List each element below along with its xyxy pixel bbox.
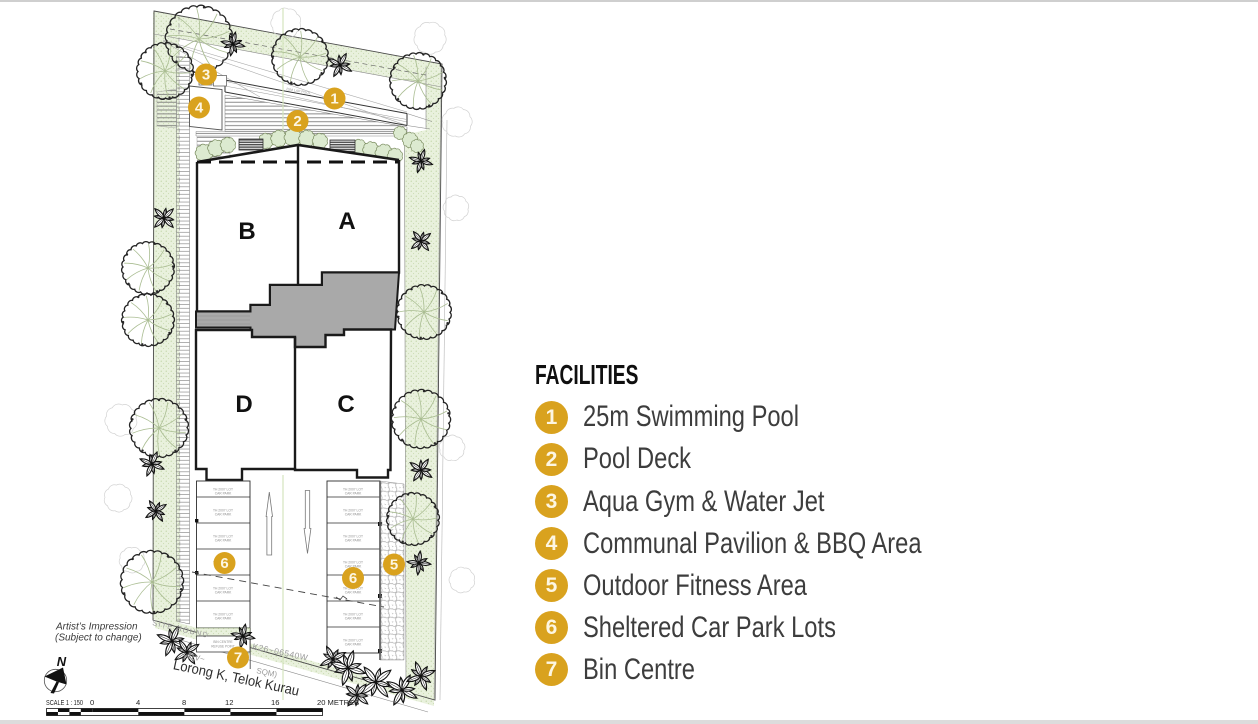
svg-text:CAR PARK: CAR PARK bbox=[215, 539, 232, 543]
svg-text:REFUSE POINT: REFUSE POINT bbox=[211, 645, 235, 649]
svg-text:4: 4 bbox=[136, 698, 140, 707]
svg-text:Artist’s Impression: Artist’s Impression bbox=[55, 622, 138, 633]
svg-text:3: 3 bbox=[202, 67, 210, 84]
svg-text:CAR PARK: CAR PARK bbox=[215, 513, 232, 517]
svg-text:2: 2 bbox=[293, 113, 301, 130]
svg-text:1: 1 bbox=[330, 91, 338, 108]
svg-text:4: 4 bbox=[195, 100, 204, 117]
svg-text:A: A bbox=[338, 208, 355, 235]
svg-text:CAR PARK: CAR PARK bbox=[345, 539, 362, 543]
svg-text:CAR PARK: CAR PARK bbox=[215, 617, 232, 621]
svg-text:6: 6 bbox=[349, 570, 357, 587]
svg-text:CAR PARK: CAR PARK bbox=[345, 643, 362, 647]
svg-text:CAR PARK: CAR PARK bbox=[345, 591, 362, 595]
svg-text:B: B bbox=[238, 218, 255, 245]
svg-text:CAR PARK: CAR PARK bbox=[345, 492, 362, 496]
svg-text:D: D bbox=[235, 391, 252, 418]
svg-text:CAR PARK: CAR PARK bbox=[215, 591, 232, 595]
svg-text:7: 7 bbox=[234, 650, 242, 667]
svg-text:6: 6 bbox=[220, 555, 228, 572]
svg-text:12: 12 bbox=[225, 698, 233, 707]
svg-text:(Subject to change): (Subject to change) bbox=[55, 633, 142, 644]
svg-text:SCALE 1 : 150: SCALE 1 : 150 bbox=[46, 698, 83, 707]
svg-text:C: C bbox=[337, 391, 354, 418]
svg-text:20 METRES: 20 METRES bbox=[317, 698, 359, 707]
svg-text:0: 0 bbox=[90, 698, 94, 707]
svg-text:N: N bbox=[57, 654, 67, 669]
svg-text:5: 5 bbox=[390, 557, 398, 574]
svg-text:16: 16 bbox=[271, 698, 279, 707]
svg-text:8: 8 bbox=[182, 698, 186, 707]
svg-text:CAR PARK: CAR PARK bbox=[215, 492, 232, 496]
svg-text:BIN CENTRE: BIN CENTRE bbox=[213, 640, 232, 644]
svg-text:25M LAP POOL: 25M LAP POOL bbox=[286, 87, 311, 95]
svg-text:CAR PARK: CAR PARK bbox=[345, 513, 362, 517]
svg-text:CAR PARK: CAR PARK bbox=[345, 617, 362, 621]
